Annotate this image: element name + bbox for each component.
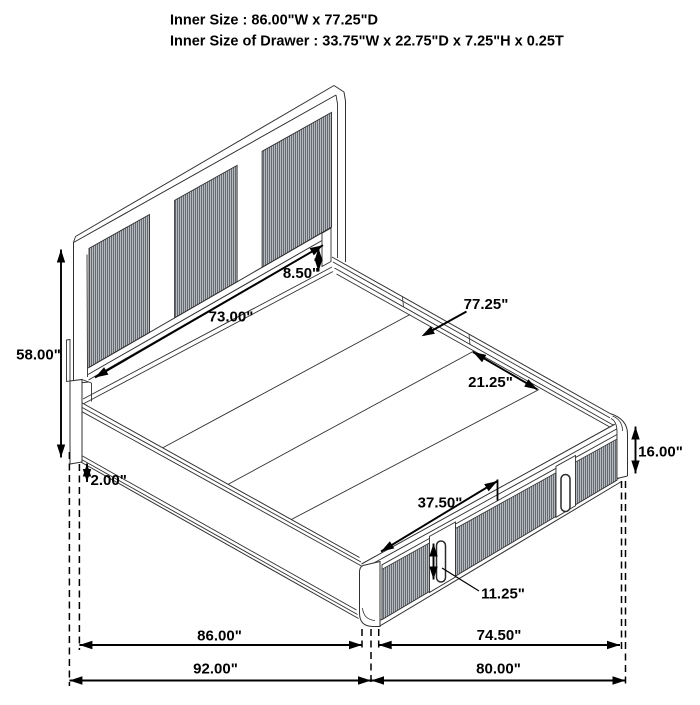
svg-text:Inner Size of Drawer : 33.75"W: Inner Size of Drawer : 33.75"W x 22.75"D…	[170, 34, 564, 50]
svg-text:92.00": 92.00"	[193, 660, 238, 677]
svg-text:Inner Size : 86.00"W x 77.25"D: Inner Size : 86.00"W x 77.25"D	[170, 13, 378, 29]
svg-text:74.50": 74.50"	[477, 627, 522, 644]
svg-text:86.00": 86.00"	[197, 627, 242, 644]
svg-text:21.25": 21.25"	[468, 374, 513, 391]
svg-text:37.50": 37.50"	[418, 494, 463, 511]
svg-text:8.50": 8.50"	[283, 265, 319, 282]
svg-text:2.00": 2.00"	[91, 472, 127, 489]
svg-text:16.00": 16.00"	[638, 443, 683, 460]
svg-text:58.00": 58.00"	[16, 346, 61, 363]
svg-text:73.00": 73.00"	[209, 308, 254, 325]
svg-text:80.00": 80.00"	[476, 660, 521, 677]
svg-text:77.25": 77.25"	[464, 296, 509, 313]
svg-text:11.25": 11.25"	[481, 585, 525, 602]
